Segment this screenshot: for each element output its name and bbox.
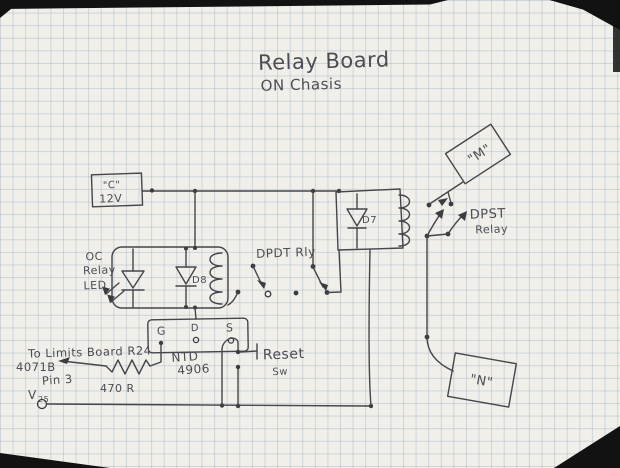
d7-label: D7 (362, 215, 377, 226)
dpst-top-contact (449, 202, 454, 207)
dpst-top-contact (427, 203, 432, 208)
wire-rail-to-dpstcoil (369, 250, 371, 406)
junction-dot (193, 246, 197, 250)
reset-label-2: Sw (272, 367, 288, 379)
wire-bottom-rail (47, 404, 371, 406)
mosfet-pin-g: G (157, 325, 166, 338)
limits-note-2: 4071B (16, 360, 56, 374)
reset-contact-dot (236, 365, 240, 369)
supply-voltage: 12V (99, 192, 122, 206)
dpdt-contact-dot (294, 291, 299, 296)
wire-curve-to-n (427, 337, 453, 371)
v25-label: V (28, 388, 37, 402)
limits-note-3: Pin 3 (42, 372, 74, 388)
mosfet-pin-s: S (226, 321, 234, 334)
wire-coilbox-to-drain (195, 308, 196, 320)
schematic-drawing: Relay Board ON Chasis "C" 12V (0, 0, 620, 468)
resistor-value: 470 R (100, 382, 135, 395)
m-wire-arrowhead (438, 198, 448, 206)
wire-gate-to-resistor (150, 344, 161, 366)
wire-source-to-rail (222, 338, 231, 406)
v25-subscript: 25 (38, 395, 49, 404)
resistor-470r (106, 360, 150, 374)
mosfet-pin-d: D (191, 323, 199, 334)
wire-pole2contact-to-d7box (327, 250, 341, 293)
mosfet-part-2: 4906 (177, 361, 210, 377)
dpdt-label: DPDT Rly (256, 245, 316, 261)
page-subtitle: ON Chasis (260, 75, 342, 95)
scanned-schematic-sheet: Relay Board ON Chasis "C" 12V (0, 0, 620, 468)
dpdt-pole1-arrowhead (257, 280, 266, 289)
wire-reset-upper (231, 338, 238, 352)
reset-label-1: Reset (263, 346, 305, 363)
led-note-3: LED (83, 279, 107, 293)
led-note-1: OC (85, 250, 103, 264)
n-connector-label: "N" (469, 372, 494, 391)
dpdt-coil-loops (210, 253, 222, 304)
m-connector-label: "M" (466, 142, 495, 168)
wire-m-branch (448, 192, 451, 203)
d8-label: D8 (192, 275, 207, 286)
reset-actuator-arm (240, 351, 257, 352)
dpst-blade-arrowhead-1 (435, 209, 444, 219)
wire-resistor-to-limits (62, 361, 106, 366)
scan-artifact-rightedge (613, 0, 620, 72)
dpdt-pole2-arrowhead (319, 282, 328, 291)
junction-dot (150, 188, 154, 192)
wire-m-to-contacts (431, 182, 463, 203)
page-title: Relay Board (258, 47, 390, 74)
dpst-label-1: DPST (469, 206, 506, 222)
supply-name: "C" (103, 180, 121, 192)
led-note-2: Relay (83, 263, 116, 277)
limits-note-1: To Limits Board R24 (27, 343, 152, 360)
dpst-label-2: Relay (475, 222, 508, 236)
drain-pad (193, 337, 198, 342)
led-triangle (122, 271, 144, 288)
dpdt-pole1-contact (265, 291, 271, 297)
wire-contact-to-coilbox (228, 292, 238, 305)
wire-dpst-pivots (427, 234, 448, 236)
